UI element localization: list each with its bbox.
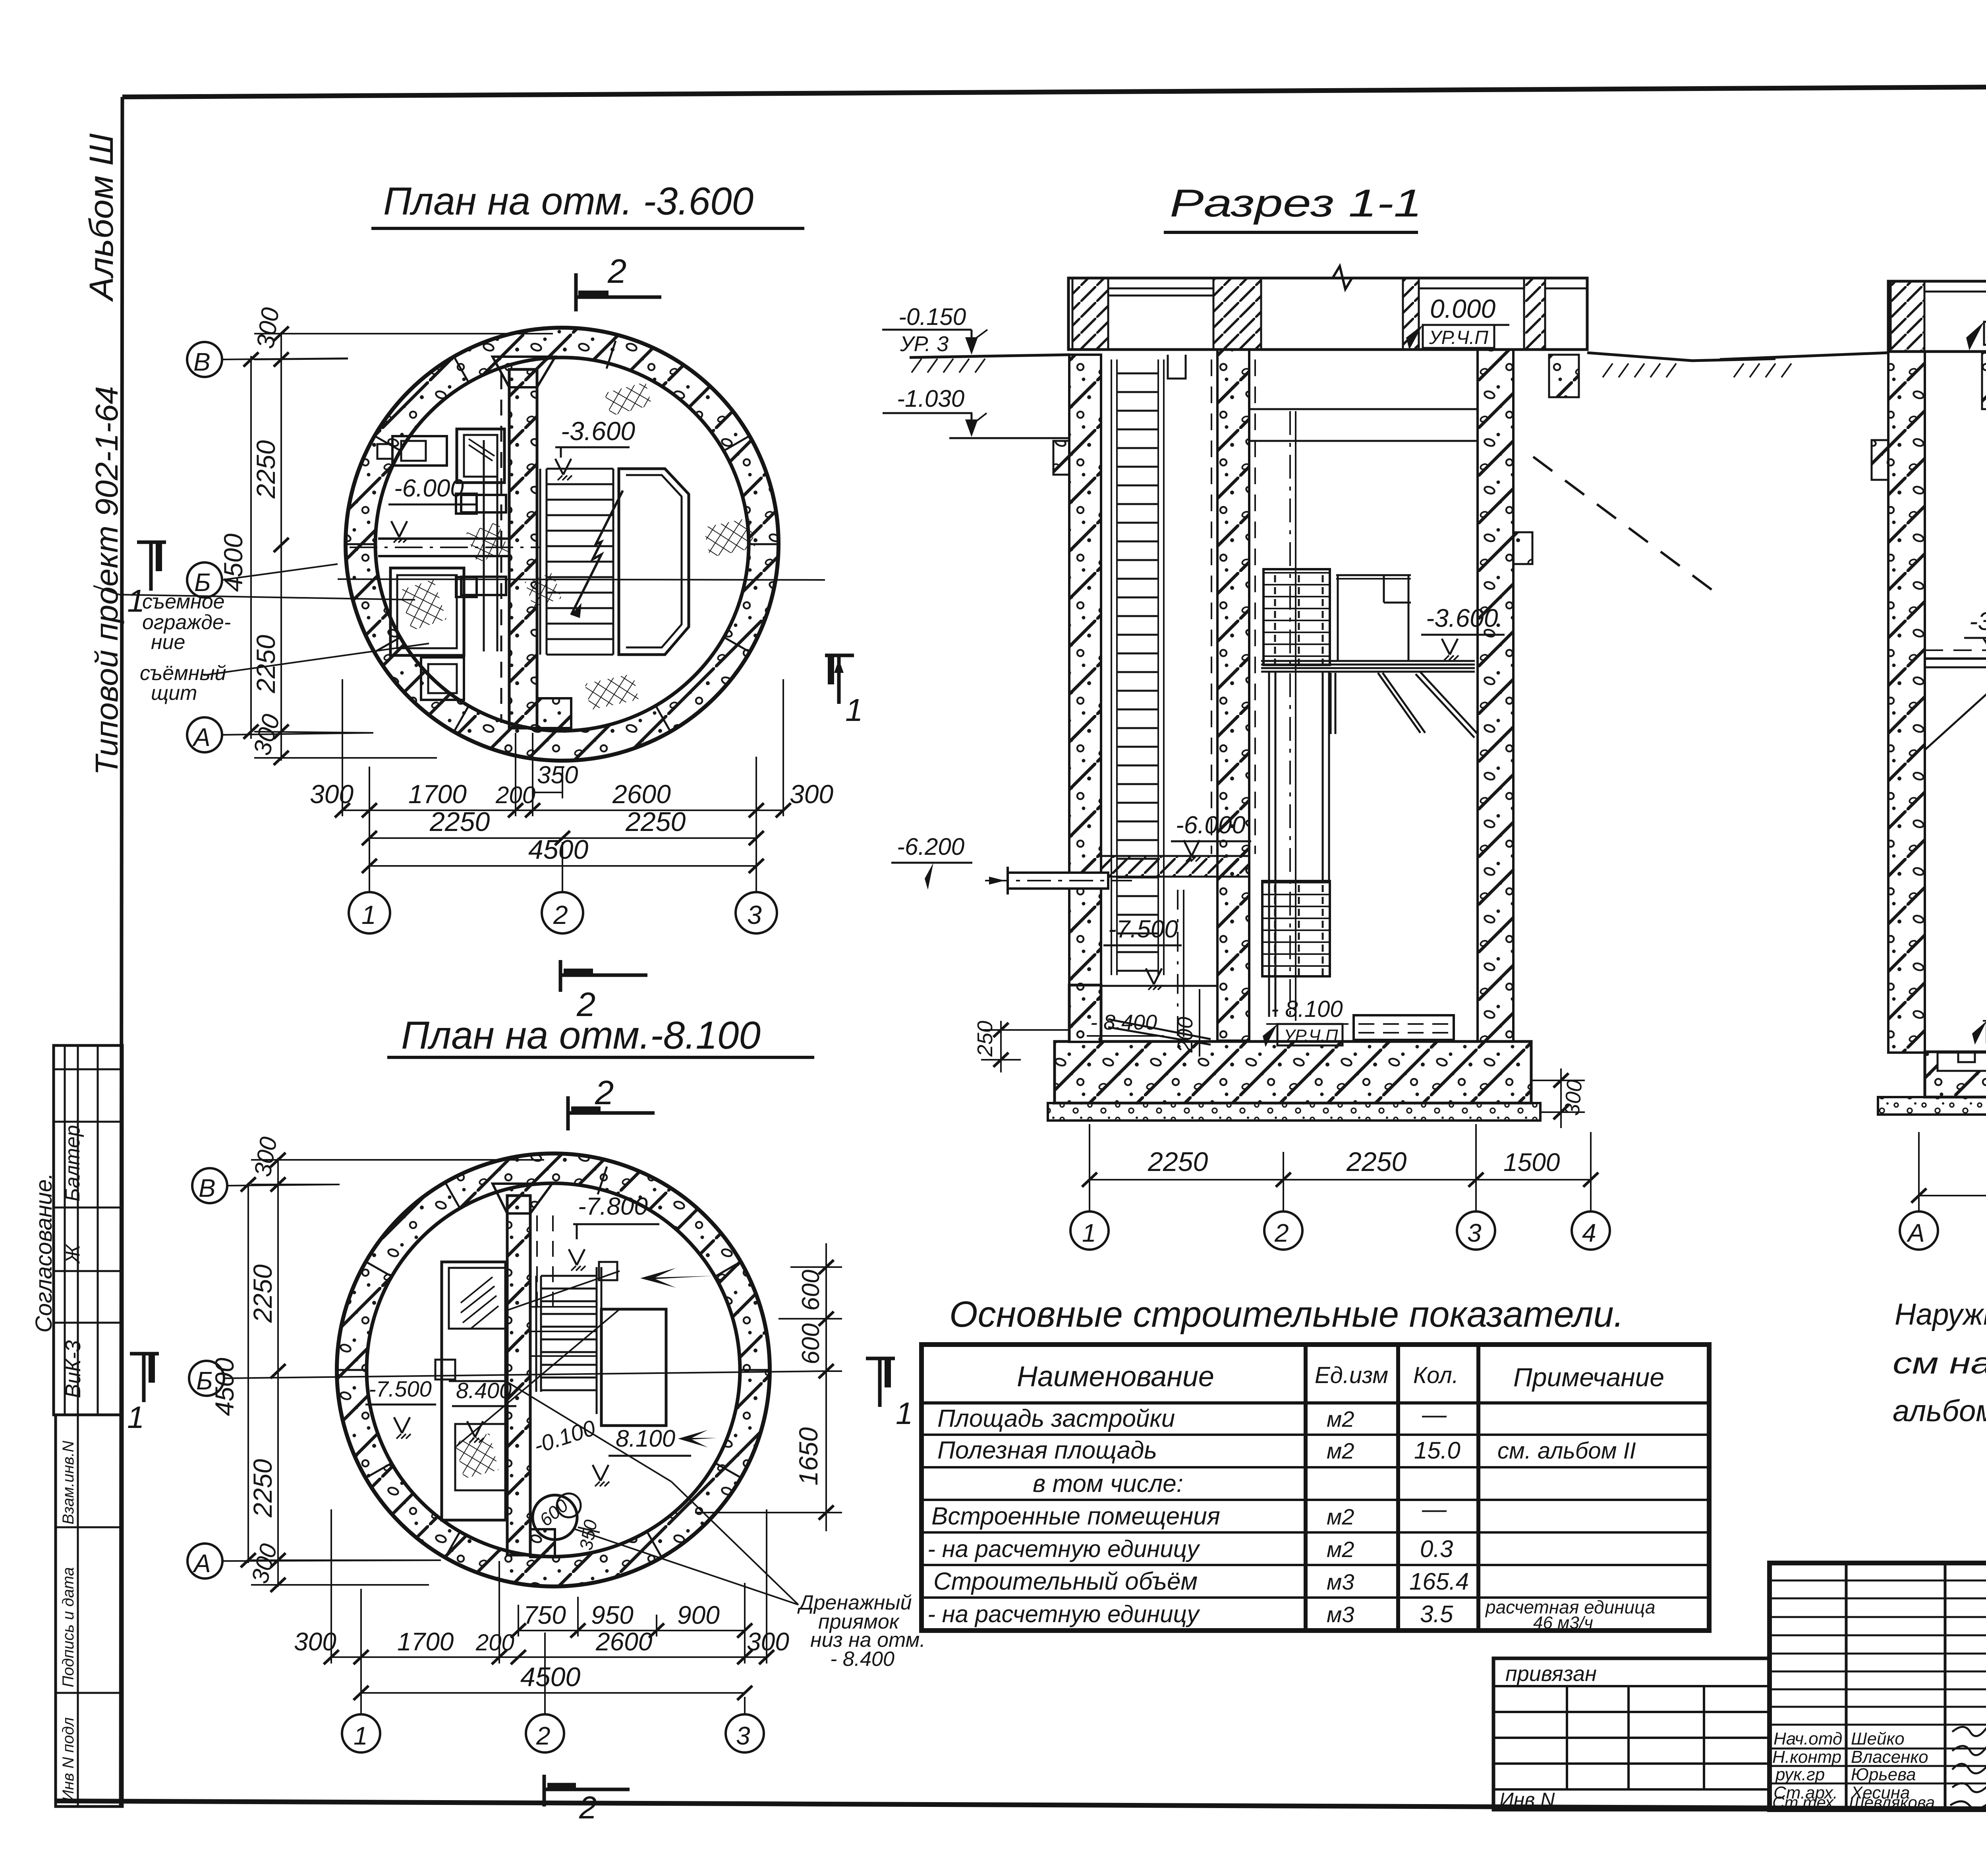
svg-text:План на отм. -3.600: План на отм. -3.600 xyxy=(383,179,753,223)
svg-text:м2: м2 xyxy=(1327,1438,1354,1463)
svg-text:2250: 2250 xyxy=(248,1264,277,1323)
svg-text:2: 2 xyxy=(595,1074,614,1112)
svg-text:950: 950 xyxy=(591,1601,634,1629)
svg-text:УР.Ч.П: УР.Ч.П xyxy=(1429,327,1488,348)
svg-text:Инв N подл: Инв N подл xyxy=(60,1717,77,1801)
svg-text:2600: 2600 xyxy=(595,1627,653,1656)
svg-text:2: 2 xyxy=(536,1721,551,1750)
svg-text:—: — xyxy=(1422,1495,1447,1523)
svg-text:Примечание: Примечание xyxy=(1513,1362,1664,1392)
svg-text:300: 300 xyxy=(790,779,833,809)
svg-text:300: 300 xyxy=(1560,1079,1587,1117)
svg-text:4500: 4500 xyxy=(218,533,248,592)
svg-text:300: 300 xyxy=(747,1627,789,1656)
svg-text:1700: 1700 xyxy=(408,779,467,809)
svg-text:А: А xyxy=(192,723,211,752)
svg-text:Балтер: Балтер xyxy=(61,1125,84,1202)
svg-text:15.0: 15.0 xyxy=(1414,1437,1461,1464)
svg-text:Встроенные помещения: Встроенные помещения xyxy=(931,1503,1220,1530)
svg-text:600: 600 xyxy=(797,1270,825,1311)
svg-text:2: 2 xyxy=(579,1790,597,1825)
svg-text:-6.000: -6.000 xyxy=(394,475,464,502)
svg-text:Площадь застройки: Площадь застройки xyxy=(937,1405,1175,1432)
svg-text:- 8.400: - 8.400 xyxy=(830,1648,894,1671)
svg-text:Шейко: Шейко xyxy=(1851,1729,1905,1748)
svg-text:Типовой проект 902-1-64: Типовой проект 902-1-64 xyxy=(89,386,124,775)
svg-text:в том числе:: в том числе: xyxy=(1033,1470,1183,1497)
svg-text:165.4: 165.4 xyxy=(1409,1568,1469,1595)
svg-text:-7.500: -7.500 xyxy=(369,1376,432,1401)
svg-text:300: 300 xyxy=(294,1627,336,1656)
svg-text:м2: м2 xyxy=(1327,1407,1354,1432)
svg-text:ВиК-3: ВиК-3 xyxy=(61,1340,85,1398)
svg-text:200: 200 xyxy=(1173,1017,1197,1053)
svg-text:Полезная площадь: Полезная площадь xyxy=(937,1437,1157,1464)
svg-text:Б: Б xyxy=(194,568,211,597)
svg-text:- на расчетную единицу: - на расчетную единицу xyxy=(927,1536,1201,1562)
svg-text:200: 200 xyxy=(495,782,535,808)
svg-text:Нач.отд: Нач.отд xyxy=(1773,1729,1842,1748)
svg-text:-0.150: -0.150 xyxy=(898,303,966,330)
svg-text:—: — xyxy=(1422,1401,1447,1428)
svg-text:2: 2 xyxy=(607,253,626,290)
svg-text:см на листе ТП. 90: см на листе ТП. 902-1-60-КЖ-2 xyxy=(1893,1347,1986,1380)
svg-text:привязан: привязан xyxy=(1505,1662,1597,1686)
svg-text:1500: 1500 xyxy=(1503,1148,1560,1177)
svg-text:2: 2 xyxy=(1274,1219,1289,1247)
svg-text:альбом II: альбом II xyxy=(1893,1394,1986,1428)
svg-text:-7.500: -7.500 xyxy=(1108,916,1178,943)
svg-text:Наружную гидроизоляцию стен и: Наружную гидроизоляцию стен и днища xyxy=(1895,1298,1986,1331)
svg-text:4: 4 xyxy=(1582,1219,1596,1247)
svg-text:УР. 3: УР. 3 xyxy=(900,332,949,356)
svg-text:м2: м2 xyxy=(1327,1504,1354,1529)
svg-text:рук.гр: рук.гр xyxy=(1775,1765,1825,1784)
svg-text:350: 350 xyxy=(537,761,578,789)
svg-text:3: 3 xyxy=(736,1721,750,1750)
svg-text:1650: 1650 xyxy=(794,1427,823,1486)
svg-text:0.000: 0.000 xyxy=(1430,294,1495,323)
svg-text:А: А xyxy=(192,1549,211,1578)
svg-text:4500: 4500 xyxy=(520,1662,580,1692)
svg-text:8.400: 8.400 xyxy=(456,1378,512,1403)
svg-text:Ж: Ж xyxy=(62,1244,84,1264)
svg-text:Согласование.: Согласование. xyxy=(31,1173,57,1333)
svg-text:Строительный объём: Строительный объём xyxy=(933,1568,1198,1595)
svg-text:1700: 1700 xyxy=(397,1627,454,1656)
svg-text:Взам.инв.N: Взам.инв.N xyxy=(60,1441,77,1524)
svg-text:2250: 2250 xyxy=(248,1459,277,1518)
svg-text:В: В xyxy=(199,1174,216,1202)
svg-text:Основные строительные показа: Основные строительные показатели. xyxy=(949,1294,1624,1335)
svg-text:250: 250 xyxy=(973,1021,997,1057)
svg-text:- на расчетную единицу: - на расчетную единицу xyxy=(927,1601,1201,1627)
svg-text:см. альбом II: см. альбом II xyxy=(1497,1438,1636,1464)
svg-text:Подпись и дата: Подпись и дата xyxy=(60,1567,77,1687)
svg-text:4500: 4500 xyxy=(528,835,588,865)
svg-text:2250: 2250 xyxy=(1148,1147,1208,1177)
svg-text:900: 900 xyxy=(677,1601,720,1629)
svg-text:Шевлякова: Шевлякова xyxy=(1849,1793,1935,1812)
svg-text:1: 1 xyxy=(845,692,863,728)
svg-text:Ст.тех.: Ст.тех. xyxy=(1772,1793,1838,1812)
svg-text:В: В xyxy=(193,348,211,376)
svg-text:-3.600: -3.600 xyxy=(1969,607,1986,636)
svg-text:щит: щит xyxy=(151,682,197,705)
svg-text:300: 300 xyxy=(310,779,354,809)
svg-text:2250: 2250 xyxy=(625,807,686,837)
svg-text:2250: 2250 xyxy=(251,440,280,499)
svg-text:1: 1 xyxy=(354,1721,368,1750)
svg-text:м3: м3 xyxy=(1327,1569,1354,1594)
svg-text:Кол.: Кол. xyxy=(1413,1362,1459,1388)
svg-text:600: 600 xyxy=(797,1323,825,1364)
svg-text:1: 1 xyxy=(361,900,376,929)
svg-text:Юрьева: Юрьева xyxy=(1851,1765,1916,1784)
svg-text:46 м3/ч: 46 м3/ч xyxy=(1533,1613,1593,1633)
svg-text:м3: м3 xyxy=(1327,1602,1354,1627)
svg-text:1: 1 xyxy=(1082,1219,1096,1247)
svg-text:Альбом Ш: Альбом Ш xyxy=(83,133,120,302)
svg-text:ние: ние xyxy=(151,631,185,654)
svg-text:-6.000: -6.000 xyxy=(1176,811,1246,839)
svg-text:-6.200: -6.200 xyxy=(897,833,964,860)
svg-text:Ед.изм: Ед.изм xyxy=(1315,1362,1388,1388)
svg-text:- 8.100: - 8.100 xyxy=(1271,996,1343,1022)
svg-text:-7.800: -7.800 xyxy=(578,1193,648,1220)
svg-text:съемное: съемное xyxy=(142,590,225,613)
svg-text:Инв N: Инв N xyxy=(1499,1789,1555,1811)
svg-text:300: 300 xyxy=(252,306,285,350)
svg-text:750: 750 xyxy=(524,1601,566,1629)
svg-text:Наименование: Наименование xyxy=(1017,1361,1214,1393)
svg-text:3: 3 xyxy=(1467,1219,1482,1247)
svg-text:А: А xyxy=(1906,1219,1925,1247)
svg-text:2250: 2250 xyxy=(251,635,280,694)
svg-text:200: 200 xyxy=(475,1630,514,1656)
svg-text:1: 1 xyxy=(896,1396,913,1431)
svg-text:2: 2 xyxy=(553,900,568,929)
svg-text:1: 1 xyxy=(127,1400,144,1435)
svg-text:2250: 2250 xyxy=(429,807,490,837)
svg-text:Власенко: Власенко xyxy=(1851,1747,1928,1767)
svg-text:м2: м2 xyxy=(1327,1537,1354,1562)
svg-text:-1.030: -1.030 xyxy=(897,385,964,412)
svg-text:-3.600: -3.600 xyxy=(561,416,635,446)
svg-text:Разрез 1-1: Разрез 1-1 xyxy=(1170,181,1422,225)
svg-text:План на отм.-8.100: План на отм.-8.100 xyxy=(401,1013,761,1057)
svg-text:2600: 2600 xyxy=(612,779,671,809)
svg-text:3: 3 xyxy=(747,900,762,929)
svg-text:4500: 4500 xyxy=(210,1358,239,1416)
svg-text:0.3: 0.3 xyxy=(1420,1536,1453,1562)
svg-text:3.5: 3.5 xyxy=(1420,1601,1453,1627)
svg-text:Н.контр: Н.контр xyxy=(1772,1747,1841,1767)
svg-text:2250: 2250 xyxy=(1346,1147,1406,1177)
svg-text:8.100: 8.100 xyxy=(616,1425,675,1452)
